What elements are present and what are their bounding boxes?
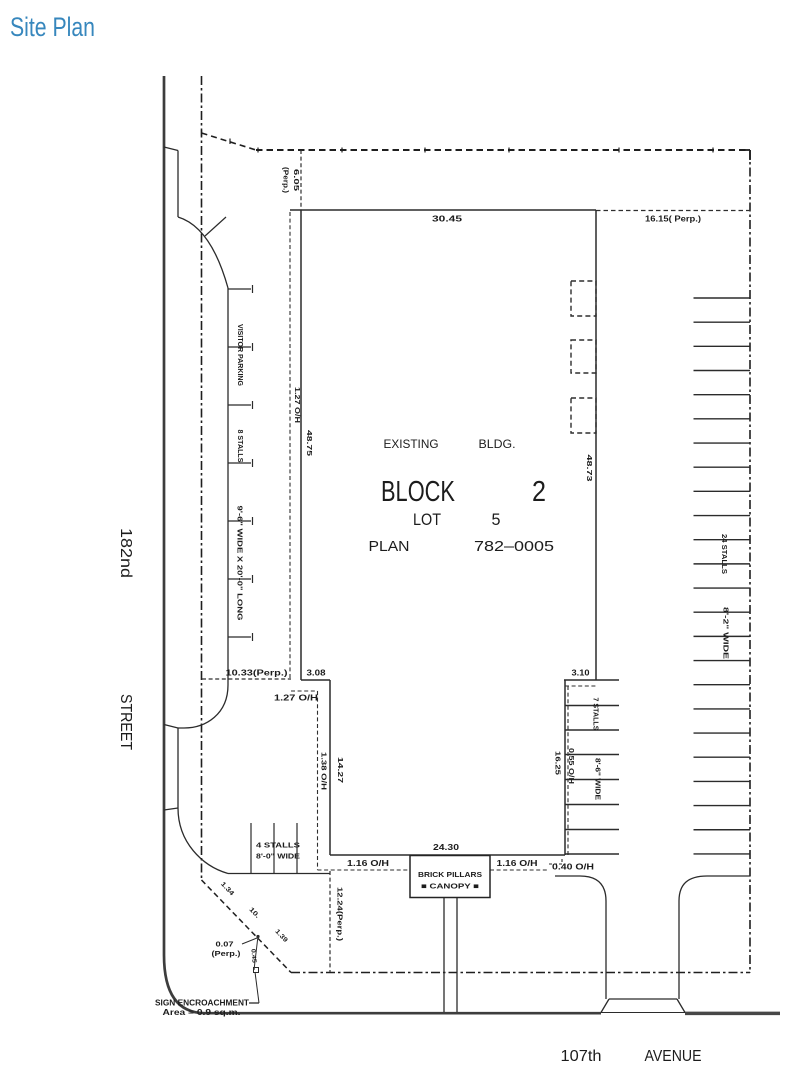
svg-text:Site Plan: Site Plan — [10, 12, 95, 42]
svg-text:14.27: 14.27 — [336, 757, 345, 783]
svg-text:1.27 O/H: 1.27 O/H — [293, 387, 302, 423]
svg-text:48.73: 48.73 — [585, 455, 594, 482]
svg-text:BLDG.: BLDG. — [479, 437, 516, 451]
svg-text:8'-0" WIDE: 8'-0" WIDE — [256, 852, 300, 861]
svg-text:(Perp.): (Perp.) — [212, 949, 242, 958]
svg-text:PLAN: PLAN — [369, 538, 410, 555]
svg-text:6.05: 6.05 — [292, 169, 301, 191]
svg-text:8'-6" WIDE: 8'-6" WIDE — [594, 758, 601, 800]
svg-text:STREET: STREET — [117, 694, 134, 750]
svg-text:0.55 O/H: 0.55 O/H — [567, 748, 574, 784]
svg-text:182nd: 182nd — [117, 528, 134, 578]
svg-text:0.45: 0.45 — [249, 949, 256, 964]
svg-text:SIGN ENCROACHMENT: SIGN ENCROACHMENT — [155, 999, 249, 1008]
svg-text:5: 5 — [492, 510, 501, 529]
svg-text:VISITOR PARKING: VISITOR PARKING — [236, 324, 245, 386]
svg-text:9'-6" WIDE X 20'-0" LONG: 9'-6" WIDE X 20'-0" LONG — [236, 506, 243, 622]
svg-text:8'-2" WIDE: 8'-2" WIDE — [722, 607, 731, 659]
svg-text:BRICK PILLARS: BRICK PILLARS — [418, 870, 482, 879]
svg-text:0.40 O/H: 0.40 O/H — [552, 863, 594, 872]
svg-text:7 STALLS: 7 STALLS — [592, 698, 599, 731]
svg-text:24 STALLS: 24 STALLS — [720, 534, 729, 574]
svg-text:AVENUE: AVENUE — [645, 1048, 702, 1065]
svg-text:4 STALLS: 4 STALLS — [256, 841, 300, 850]
svg-text:LOT: LOT — [413, 510, 441, 529]
svg-text:1.38 O/H: 1.38 O/H — [320, 752, 329, 790]
svg-text:EXISTING: EXISTING — [384, 437, 439, 451]
svg-text:10.33(Perp.): 10.33(Perp.) — [226, 669, 288, 678]
svg-text:1.16 O/H: 1.16 O/H — [347, 859, 389, 868]
svg-text:48.75: 48.75 — [305, 430, 314, 456]
svg-text:0.07: 0.07 — [216, 940, 234, 949]
svg-text:16.15( Perp.): 16.15( Perp.) — [645, 215, 701, 224]
svg-text:782–0005: 782–0005 — [474, 538, 554, 555]
svg-text:3.08: 3.08 — [307, 669, 327, 678]
svg-text:107th: 107th — [561, 1048, 602, 1065]
svg-text:8 STALLS: 8 STALLS — [236, 430, 245, 463]
svg-text:1.16 O/H: 1.16 O/H — [497, 859, 538, 868]
svg-text:1.27 O/H: 1.27 O/H — [274, 694, 318, 703]
svg-text:(Perp.): (Perp.) — [282, 167, 291, 194]
svg-text:2: 2 — [532, 476, 546, 508]
svg-text:BLOCK: BLOCK — [381, 476, 455, 508]
svg-text:30.45: 30.45 — [432, 215, 463, 224]
svg-text:■ CANOPY ■: ■ CANOPY ■ — [421, 882, 480, 891]
svg-text:16.25: 16.25 — [554, 751, 561, 775]
svg-text:24.30: 24.30 — [433, 843, 460, 852]
svg-text:12.24(Perp.): 12.24(Perp.) — [336, 887, 345, 942]
svg-text:Area = 0.9 sq.m.: Area = 0.9 sq.m. — [163, 1008, 241, 1017]
svg-text:3.10: 3.10 — [572, 669, 591, 678]
